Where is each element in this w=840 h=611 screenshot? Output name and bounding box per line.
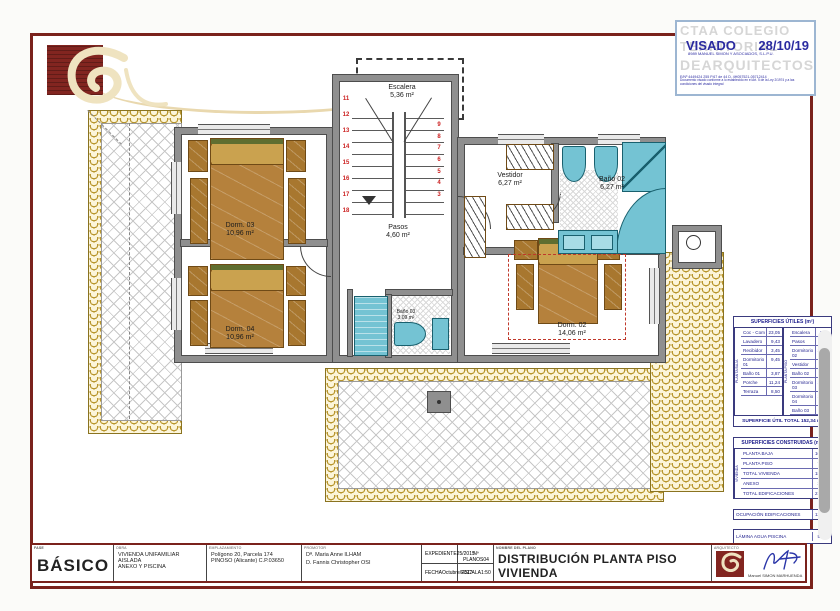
stair-num: 4	[437, 180, 440, 186]
titleblock-expediente-fecha-cell: EXPEDIENTE25/2015 FECHAOctubre/2017	[422, 545, 458, 581]
stair-numbers-left: 11 12 13 14 15 16 17 18	[341, 96, 351, 214]
project-phase: BÁSICO	[37, 556, 109, 576]
room-label-vestidor: Vestidor 6,27 m²	[497, 172, 522, 188]
group-label-planta-piso: PLANTA PISO	[783, 328, 790, 415]
bench	[190, 300, 208, 346]
visado-label: VISADO	[686, 38, 736, 53]
cell-value: 3,87	[767, 369, 782, 377]
cell-name: TOTAL VIVIENDA	[741, 469, 813, 478]
window-dorm02-south	[492, 343, 570, 354]
architect-name: Manuel SIMON MARHUENDA	[748, 573, 802, 578]
table-row: OCUPACIÓN EDIFICACIONES135,30	[734, 510, 831, 519]
nightstand	[286, 140, 306, 172]
cell-name: Dormitorio 04	[790, 392, 816, 405]
stair-direction-arrow-icon	[362, 196, 376, 205]
terrace-left-paving	[101, 123, 182, 421]
drawing-sheet: CTAA COLEGIO TERRITORIAL VISADO 28/10/19…	[0, 0, 840, 611]
cell-header: PROMOTOR	[304, 546, 326, 550]
table-row: Dormitorio 019,45	[741, 355, 782, 369]
room-name: Pasos	[388, 224, 407, 231]
title-block: FASE BÁSICO OBRA VIVIENDA UNIFAMILIAR AI…	[30, 543, 807, 583]
titleblock-promotor-cell: PROMOTOR Dª. Maria Anne ILHAM D. Fannis …	[302, 545, 422, 581]
cell-value: 23,05	[767, 328, 782, 336]
toilet-symbol	[562, 146, 586, 182]
bed-pillows	[211, 270, 283, 291]
cell-value: 3,45	[767, 346, 782, 354]
stair-num: 15	[343, 160, 350, 166]
window-dorm03-north	[198, 124, 270, 135]
table-title: SUPERFICIES ÚTILES (m²)	[734, 317, 831, 328]
cell-name: Porche	[741, 378, 767, 386]
stair-num: 17	[343, 192, 350, 198]
cell-name: Pasos	[790, 337, 816, 345]
room-area: 5,36 m²	[390, 92, 414, 99]
titleblock-fase-cell: FASE BÁSICO	[32, 545, 114, 581]
nightstand	[188, 266, 208, 296]
room-name: Escalera	[388, 84, 415, 91]
stair-num: 12	[343, 112, 350, 118]
wall-bano03-top	[386, 290, 452, 295]
shower-symbol	[354, 296, 388, 356]
cell-header: NOMBRE DEL PLANO	[496, 546, 536, 550]
cell-name: Coc - Com	[741, 328, 767, 336]
room-label-bano02: Baño 02 6,27 m²	[599, 176, 625, 192]
room-label-bano03: Baño 03 3,09 m²	[397, 310, 416, 322]
toilet-symbol	[394, 322, 426, 346]
stair-num: 6	[437, 157, 440, 163]
architect-signature	[754, 547, 806, 573]
cell-name: Lavadero	[741, 337, 767, 345]
room-area: 10,96 m²	[226, 230, 254, 237]
balcony-column-icon	[686, 235, 701, 250]
titleblock-situacion-cell: EMPLAZAMIENTO Polígono 20, Parcela 174 P…	[207, 545, 302, 581]
cell-name: Terraza	[741, 387, 767, 395]
stair-numbers-right: 9 8 7 6 5 4 3	[434, 122, 444, 198]
room-label-dorm04: Dorm. 04 10,96 m²	[226, 326, 255, 342]
cell-name: Dormitorio 02	[790, 346, 816, 359]
stair-num: 13	[343, 128, 350, 134]
terrace-bottom-paving	[338, 381, 651, 489]
cell-name: Baño 01	[741, 369, 767, 377]
cell-name: PLANTA BAJA	[741, 449, 813, 458]
scrollbar-thumb[interactable]	[819, 348, 830, 513]
titleblock-plan-name-cell: NOMBRE DEL PLANO DISTRIBUCIÓN PLANTA PIS…	[494, 545, 712, 581]
table-row: Coc - Com23,05	[741, 328, 782, 337]
project-title-line2: ANEXO Y PISCINA	[118, 564, 203, 570]
room-name: Vestidor	[497, 172, 522, 179]
titleblock-plano-escala-cell: Nº PLANOS04 ESCALA1:50	[458, 545, 494, 581]
stair-num: 9	[437, 122, 440, 128]
room-area: 3,09 m²	[398, 315, 415, 321]
room-label-dorm03: Dorm. 03 10,96 m²	[226, 222, 255, 238]
room-name: Baño 02	[599, 176, 625, 183]
sink-symbol	[432, 318, 449, 350]
utiles-total: SUPERFICIE ÚTIL TOTAL 152,34 m²	[734, 415, 831, 426]
room-area: 4,60 m²	[386, 232, 410, 239]
cell-header: EMPLAZAMIENTO	[209, 546, 242, 550]
room-label-escalera: Escalera 5,36 m²	[388, 84, 415, 100]
scale-value: 1:50	[481, 570, 491, 576]
cell-value: 8,50	[767, 387, 782, 395]
cell-value: 11,24	[767, 378, 782, 386]
client-name-line2: D. Fannis Christopher OSI	[306, 560, 418, 566]
cell-name: Vestidor	[790, 360, 816, 368]
bench	[190, 178, 208, 244]
room-area: 6,27 m²	[498, 180, 522, 187]
plan-name: DISTRIBUCIÓN PLANTA PISO VIVIENDA	[498, 552, 708, 580]
stair-num: 18	[343, 208, 350, 214]
cell-name: OCUPACIÓN EDIFICACIONES	[734, 510, 813, 519]
bed-pillows	[211, 144, 283, 165]
sheet-number: 04	[483, 557, 489, 563]
room-area: 6,27 m²	[600, 184, 624, 191]
table-row: LÁMINA AGUA PISCINA50,00	[734, 530, 831, 543]
nightstand	[188, 140, 208, 172]
wardrobe	[506, 144, 554, 170]
window-dorm04-west	[171, 278, 182, 330]
titleblock-architect-cell: ARQUITECTO Manuel SIMON MARHUENDA	[712, 545, 805, 581]
visado-stamp: CTAA COLEGIO TERRITORIAL VISADO 28/10/19…	[675, 20, 816, 96]
stamp-org-bottom: DEARQUITECTOS	[680, 57, 811, 73]
window-dorm02-east	[649, 268, 660, 324]
corner-shower-symbol	[622, 142, 666, 192]
cell-value: 9,43	[767, 337, 782, 345]
table-row: Terraza8,50	[741, 387, 782, 396]
cell-name: LÁMINA AGUA PISCINA	[734, 532, 813, 541]
cell-name: Baño 02	[790, 369, 816, 377]
nightstand	[286, 266, 306, 296]
cell-name: Dormitorio 03	[790, 378, 816, 391]
stair-num: 16	[343, 176, 350, 182]
titleblock-obra-cell: OBRA VIVIENDA UNIFAMILIAR AISLADA ANEXO …	[114, 545, 207, 581]
stair-num: 5	[437, 169, 440, 175]
cell-header: FECHA	[425, 570, 442, 576]
cell-name: Dormitorio 01	[741, 355, 767, 368]
site-address-line2: PINOSO (Alicante) C.P.03650	[211, 558, 298, 564]
table-title: SUPERFICIES CONSTRUIDAS (m²)	[734, 438, 831, 449]
room-label-pasos: Pasos 4,60 m²	[386, 224, 410, 240]
room-area: 10,96 m²	[226, 334, 254, 341]
terrace-bottom-pillar-dot	[437, 400, 441, 404]
architect-mini-logo-spiral-icon	[714, 550, 750, 580]
stair-rail	[392, 112, 406, 218]
cell-header: EXPEDIENTE	[425, 551, 457, 557]
wardrobe	[464, 196, 486, 258]
cell-name: PLANTA PISO	[741, 459, 813, 468]
stair-num: 14	[343, 144, 350, 150]
cell-name: TOTAL EDIFICACIONES	[741, 489, 813, 498]
cell-header: OBRA	[116, 546, 127, 550]
cell-name: ANEXO	[741, 479, 813, 488]
stamp-org-top: CTAA COLEGIO	[680, 23, 811, 38]
cell-name: Escalera	[790, 328, 816, 336]
stair-num: 3	[437, 192, 440, 198]
room-name: Dorm. 02	[558, 322, 587, 329]
bed-dorm03	[210, 138, 284, 260]
table-row: Lavadero9,43	[741, 337, 782, 346]
cell-header: Nº PLANOS	[463, 551, 483, 563]
bench	[288, 300, 306, 346]
cell-header: FASE	[34, 546, 44, 550]
cell-value: 9,45	[767, 355, 782, 368]
stair-num: 7	[437, 145, 440, 151]
room-name: Dorm. 03	[226, 222, 255, 229]
stair-num: 8	[437, 134, 440, 140]
stair-num: 11	[343, 96, 349, 102]
cell-name: Baño 03	[790, 406, 816, 414]
group-label-planta-baja: PLANTA BAJA	[734, 328, 741, 415]
table-row: Recibidor3,45	[741, 346, 782, 355]
table-row: Baño 013,87	[741, 369, 782, 378]
table-row: Porche11,24	[741, 378, 782, 387]
cell-name: Recibidor	[741, 346, 767, 354]
room-area: 14,06 m²	[558, 330, 586, 337]
visado-date: 28/10/19	[758, 38, 809, 53]
client-name-line1: Dª. Maria Anne ILHAM	[306, 552, 418, 558]
wardrobe	[506, 204, 554, 230]
double-sink-symbol	[558, 230, 618, 254]
room-name: Dorm. 04	[226, 326, 255, 333]
room-label-dorm02: Dorm. 02 14,06 m²	[558, 322, 587, 338]
terrace-left-hip-line	[129, 123, 130, 419]
bench	[288, 178, 306, 244]
cell-header: ESCALA	[461, 570, 481, 576]
group-label-vivienda: VIVIENDA	[734, 449, 741, 498]
stamp-note: Documento visado conforme a lo estableci…	[680, 79, 811, 87]
window-dorm03-west	[171, 162, 182, 214]
project-title-line1: VIVIENDA UNIFAMILIAR AISLADA	[118, 552, 203, 564]
wall-shower-left	[348, 290, 352, 356]
